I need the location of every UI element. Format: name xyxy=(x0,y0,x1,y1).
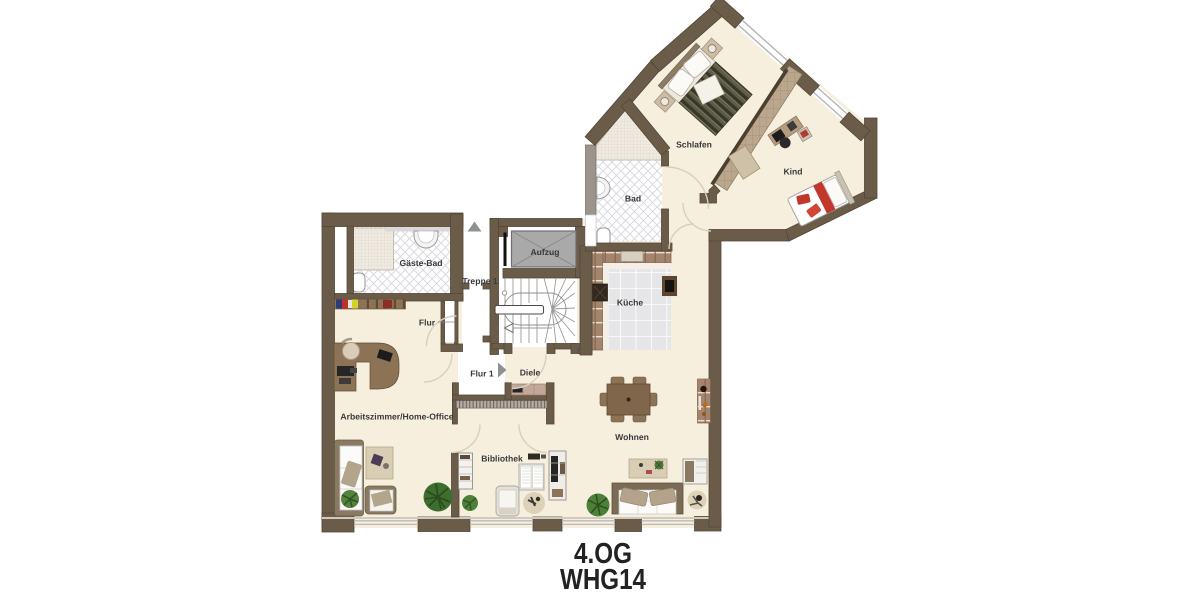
svg-text:WHG14: WHG14 xyxy=(560,564,646,596)
svg-text:Flur: Flur xyxy=(419,318,436,328)
svg-text:Diele: Diele xyxy=(520,368,541,378)
svg-text:Schlafen: Schlafen xyxy=(676,140,712,150)
svg-text:Bibliothek: Bibliothek xyxy=(481,454,523,464)
svg-text:Aufzug: Aufzug xyxy=(530,247,559,257)
svg-text:Bad: Bad xyxy=(625,194,641,204)
svg-text:Küche: Küche xyxy=(617,298,643,308)
svg-text:Flur 1: Flur 1 xyxy=(470,369,494,379)
svg-text:Kind: Kind xyxy=(783,167,802,177)
svg-text:Gäste-Bad: Gäste-Bad xyxy=(400,258,443,268)
svg-text:Wohnen: Wohnen xyxy=(615,432,649,442)
svg-text:Treppe 1: Treppe 1 xyxy=(462,276,498,286)
svg-text:Arbeitszimmer/Home-Office: Arbeitszimmer/Home-Office xyxy=(340,412,453,422)
